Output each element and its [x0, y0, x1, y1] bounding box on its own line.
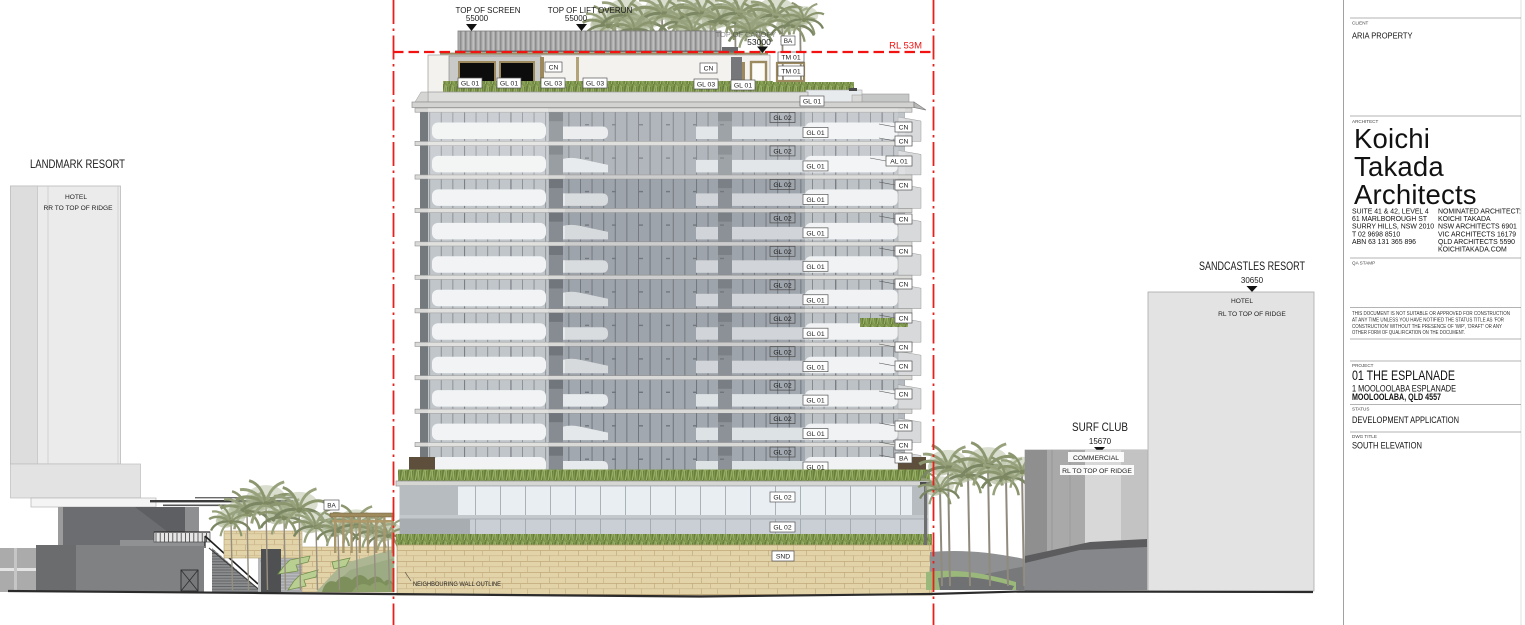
svg-text:CN: CN: [704, 66, 714, 73]
svg-text:GL 02: GL 02: [773, 416, 791, 423]
svg-text:GL 01: GL 01: [803, 99, 821, 106]
svg-text:GL 02: GL 02: [773, 495, 791, 502]
svg-text:NOMINATED ARCHITECT:: NOMINATED ARCHITECT:: [1438, 209, 1521, 216]
svg-text:OTHER FORM OF QUALIFICATION ON: OTHER FORM OF QUALIFICATION ON THE DOCUM…: [1352, 330, 1465, 336]
svg-text:LANDMARK RESORT: LANDMARK RESORT: [30, 159, 125, 171]
svg-text:15670: 15670: [1089, 437, 1112, 446]
svg-text:Koichi: Koichi: [1354, 123, 1430, 154]
svg-text:CN: CN: [899, 249, 909, 256]
svg-text:THIS DOCUMENT IS NOT SUITABLE: THIS DOCUMENT IS NOT SUITABLE OR APPROVE…: [1352, 311, 1510, 317]
svg-text:CN: CN: [899, 316, 909, 323]
svg-text:KOICHITAKADA.COM: KOICHITAKADA.COM: [1438, 247, 1507, 254]
svg-text:QA STAMP: QA STAMP: [1352, 261, 1375, 266]
svg-text:GL 02: GL 02: [773, 383, 791, 390]
svg-text:GL 01: GL 01: [806, 398, 824, 405]
svg-text:SURF CLUB: SURF CLUB: [1072, 422, 1128, 434]
svg-text:GL 03: GL 03: [697, 82, 715, 89]
svg-text:GL 02: GL 02: [773, 525, 791, 532]
svg-text:CN: CN: [899, 217, 909, 224]
svg-text:GL 01: GL 01: [806, 164, 824, 171]
svg-text:GL 01: GL 01: [806, 264, 824, 271]
svg-text:TM 01: TM 01: [781, 69, 800, 76]
svg-text:SUITE 41 & 42, LEVEL 4: SUITE 41 & 42, LEVEL 4: [1352, 209, 1429, 216]
svg-text:GL 01: GL 01: [806, 364, 824, 371]
svg-text:AL 01: AL 01: [890, 159, 908, 166]
svg-text:SOUTH ELEVATION: SOUTH ELEVATION: [1352, 441, 1422, 451]
svg-text:RL 53M: RL 53M: [889, 41, 922, 52]
svg-text:SND: SND: [776, 554, 790, 561]
svg-text:GL 01: GL 01: [806, 297, 824, 304]
svg-text:QLD ARCHITECTS 5590: QLD ARCHITECTS 5590: [1438, 239, 1515, 246]
svg-text:DEVELOPMENT APPLICATION: DEVELOPMENT APPLICATION: [1352, 415, 1459, 425]
svg-text:KOICHI TAKADA: KOICHI TAKADA: [1438, 216, 1491, 223]
svg-text:COMMERCIAL: COMMERCIAL: [1073, 455, 1119, 462]
svg-text:GL 03: GL 03: [544, 81, 562, 88]
svg-text:BA: BA: [784, 38, 793, 45]
svg-text:GL 01: GL 01: [806, 230, 824, 237]
svg-text:HOTEL: HOTEL: [65, 194, 87, 201]
svg-text:HOTEL: HOTEL: [1231, 298, 1253, 305]
svg-text:53000: 53000: [747, 37, 771, 47]
svg-text:CN: CN: [549, 65, 559, 72]
svg-text:GL 02: GL 02: [773, 182, 791, 189]
svg-text:GL 02: GL 02: [773, 149, 791, 156]
svg-text:CN: CN: [899, 364, 909, 371]
svg-text:Architects: Architects: [1354, 179, 1477, 210]
svg-text:GL 02: GL 02: [773, 450, 791, 457]
svg-text:55000: 55000: [565, 14, 588, 23]
svg-text:GL 01: GL 01: [461, 81, 479, 88]
svg-text:CN: CN: [899, 139, 909, 146]
svg-text:SANDCASTLES RESORT: SANDCASTLES RESORT: [1199, 261, 1305, 273]
svg-text:BA: BA: [327, 503, 336, 510]
svg-text:RL TO TOP OF RIDGE: RL TO TOP OF RIDGE: [1218, 311, 1286, 318]
svg-text:GL 01: GL 01: [806, 431, 824, 438]
svg-text:RL TO TOP OF RIDGE: RL TO TOP OF RIDGE: [1062, 468, 1132, 475]
svg-text:NEIGHBOURING WALL OUTLINE: NEIGHBOURING WALL OUTLINE: [413, 581, 501, 588]
svg-text:BA: BA: [899, 456, 909, 463]
svg-text:CN: CN: [899, 345, 909, 352]
svg-text:AT ANY TIME UNLESS YOU HAVE NO: AT ANY TIME UNLESS YOU HAVE NOTIFIED THE…: [1352, 317, 1504, 323]
svg-text:CONSTRUCTION' WITHOUT THE PRES: CONSTRUCTION' WITHOUT THE PRESENCE OF 'W…: [1352, 324, 1503, 330]
svg-text:GL 02: GL 02: [773, 216, 791, 223]
svg-text:CN: CN: [899, 282, 909, 289]
svg-text:STATUS: STATUS: [1352, 407, 1369, 412]
svg-text:CLIENT: CLIENT: [1352, 21, 1369, 26]
svg-text:TM 01: TM 01: [781, 55, 800, 62]
svg-text:GL 03: GL 03: [586, 81, 604, 88]
svg-text:01 THE ESPLANADE: 01 THE ESPLANADE: [1352, 368, 1455, 383]
svg-text:CN: CN: [899, 125, 909, 132]
svg-text:TOP OF LIFT OVERUN: TOP OF LIFT OVERUN: [548, 6, 633, 15]
svg-text:CN: CN: [899, 392, 909, 399]
svg-text:GL 02: GL 02: [773, 249, 791, 256]
svg-text:SURRY HILLS, NSW 2010: SURRY HILLS, NSW 2010: [1352, 224, 1434, 231]
svg-text:55000: 55000: [466, 14, 489, 23]
svg-text:RR TO TOP OF RIDGE: RR TO TOP OF RIDGE: [43, 205, 113, 212]
svg-text:GL 01: GL 01: [806, 331, 824, 338]
svg-text:DWG TITLE: DWG TITLE: [1352, 434, 1377, 439]
svg-text:NSW ARCHITECTS 6901: NSW ARCHITECTS 6901: [1438, 224, 1517, 231]
svg-text:VIC ARCHITECTS 16179: VIC ARCHITECTS 16179: [1438, 231, 1516, 238]
svg-text:CN: CN: [899, 443, 909, 450]
svg-text:GL 02: GL 02: [773, 349, 791, 356]
svg-text:ARIA PROPERTY: ARIA PROPERTY: [1352, 31, 1413, 41]
svg-text:ABN 63 131 365 896: ABN 63 131 365 896: [1352, 239, 1416, 246]
svg-text:T 02 9698 8510: T 02 9698 8510: [1352, 231, 1400, 238]
svg-text:GL 01: GL 01: [500, 81, 518, 88]
svg-text:GL 02: GL 02: [773, 316, 791, 323]
svg-text:Takada: Takada: [1354, 151, 1444, 182]
svg-text:GL 02: GL 02: [773, 115, 791, 122]
svg-text:30650: 30650: [1241, 276, 1264, 285]
svg-text:CN: CN: [899, 424, 909, 431]
svg-text:MOOLOOLABA, QLD 4557: MOOLOOLABA, QLD 4557: [1352, 392, 1441, 402]
svg-text:GL 01: GL 01: [734, 83, 752, 90]
svg-text:GL 01: GL 01: [806, 130, 824, 137]
svg-text:61 MARLBOROUGH ST: 61 MARLBOROUGH ST: [1352, 216, 1428, 223]
svg-text:GL 01: GL 01: [806, 197, 824, 204]
svg-text:GL 02: GL 02: [773, 282, 791, 289]
svg-text:CN: CN: [899, 183, 909, 190]
